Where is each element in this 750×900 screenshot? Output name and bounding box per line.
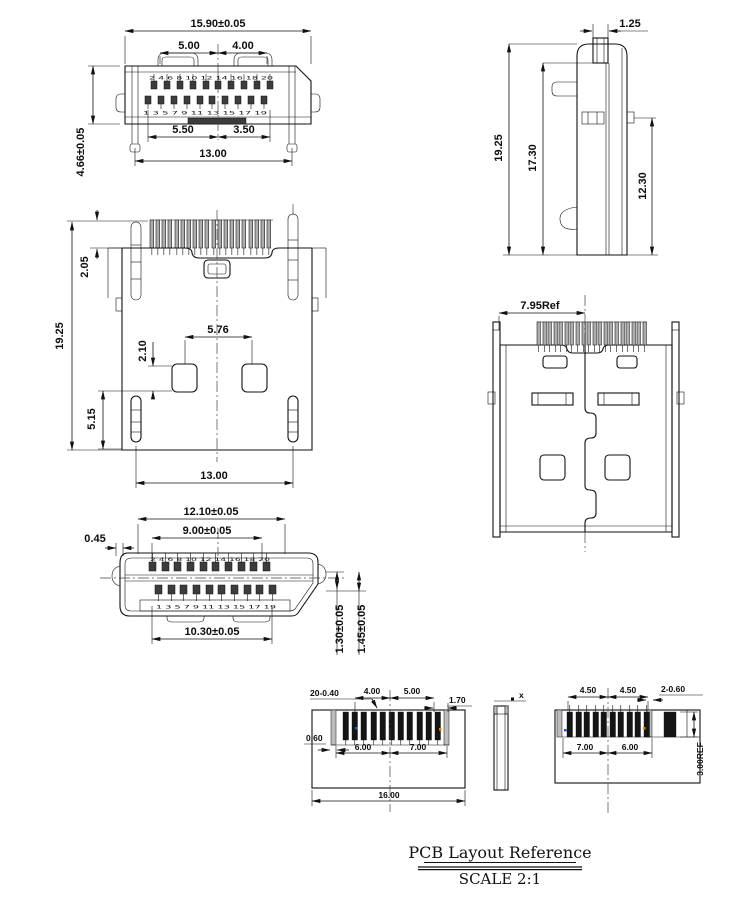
- bottom-view-dimensions: [67, 210, 293, 488]
- right-pad: [242, 364, 267, 392]
- right-bump: [627, 112, 634, 123]
- dim-c: 1.70: [449, 695, 466, 705]
- left-side-tab: [116, 298, 122, 311]
- drawing-title: PCB Layout Reference: [408, 843, 591, 862]
- view-top: 2 4 6 8 10 12 14 16 18 20 1 3 5 7 9 11 1…: [75, 18, 320, 176]
- pcb-layout-left: 20-0.40 4.00 5.00 1.70 0.60 6.00 7.00 16…: [304, 686, 472, 812]
- rear-view-body: [488, 322, 684, 537]
- dim-b: 5.00: [404, 686, 421, 696]
- dim-height: 4.66±0.05: [75, 128, 87, 177]
- left-flange: [493, 322, 500, 537]
- dim-d: 6.00: [355, 742, 372, 752]
- dim-contact-span: 9.00±0.05: [183, 525, 232, 537]
- top-tab: [593, 38, 608, 63]
- dim-slot: 0.60: [306, 733, 323, 743]
- split-line: [585, 345, 596, 532]
- left-post: [131, 222, 141, 300]
- front-view-pins-bottom: [155, 585, 276, 601]
- right-slot-pad: [444, 710, 449, 745]
- right-leg: [288, 396, 298, 442]
- left-ear: [112, 566, 120, 586]
- pcb-left-pads: [343, 712, 441, 745]
- dim-e: 7.00: [410, 742, 427, 752]
- dim-a: 4.50: [580, 685, 597, 695]
- board-lock: [582, 112, 604, 124]
- view-front: 2 4 6 8 10 12 14 16 18 20 1 3 5 7 9 11 1…: [84, 506, 368, 655]
- left-tab: [488, 392, 495, 404]
- pin-numbers-even: 2 4 6 8 10 12 14 16 18 20: [149, 76, 273, 82]
- right-post: [288, 214, 298, 300]
- dim-b: 4.50: [620, 685, 637, 695]
- dim-d: 6.00: [622, 742, 639, 752]
- dim-leg-span: 13.00: [199, 148, 227, 160]
- dim-pitch-right: 4.00: [232, 40, 253, 52]
- right-boss: [233, 616, 270, 622]
- right-ear: [318, 564, 326, 584]
- right-ear: [311, 94, 320, 112]
- right-flange: [672, 322, 679, 537]
- dim-a: 4.00: [364, 686, 381, 696]
- mark-orange: [439, 728, 442, 731]
- dim-pad-size: 2.10: [137, 340, 149, 361]
- left-slot-pad: [557, 710, 562, 737]
- left-slot: [543, 356, 567, 368]
- left-square: [540, 455, 565, 480]
- pcb-layout-right: 4.50 4.50 2-0.60 7.00 6.00 3.00REF: [555, 684, 705, 815]
- dim-leg-span2: 13.00: [200, 470, 228, 482]
- dim-body-height: 17.30: [527, 144, 539, 172]
- dim-overall-height: 19.25: [493, 134, 505, 162]
- right-side-tab: [312, 298, 318, 311]
- dim-width: 16.00: [378, 790, 400, 800]
- front-pin-numbers-top: 2 4 6 8 10 12 14 16 18 20: [150, 557, 270, 563]
- right-slot: [617, 356, 637, 368]
- bottom-view-comb: [150, 220, 273, 255]
- left-slot-pad: [331, 710, 336, 745]
- connector-drawing: 2 4 6 8 10 12 14 16 18 20 1 3 5 7 9 11 1…: [0, 0, 750, 900]
- dim-pin-tip: 2.05: [79, 256, 91, 277]
- dim-holes-count: 2-0.60: [661, 684, 685, 694]
- mark-blue: [355, 727, 358, 730]
- dim-step2: 1.45±0.05: [356, 605, 368, 654]
- side-view-dimensions: [503, 24, 658, 255]
- mark-blue: [564, 729, 567, 732]
- drawing-sheet: 2 4 6 8 10 12 14 16 18 20 1 3 5 7 9 11 1…: [0, 0, 750, 900]
- dim-thickness: x: [519, 690, 524, 700]
- side-view-body: [552, 38, 634, 255]
- dim-pad-pitch: 5.76: [207, 324, 228, 336]
- pcb-edge-view: x: [494, 690, 526, 790]
- front-pin-numbers-bottom: 1 3 5 7 9 11 13 15 17 19: [156, 605, 276, 611]
- right-square: [605, 455, 630, 480]
- dim-overall-width: 15.90±0.05: [191, 18, 246, 30]
- left-leg: [131, 396, 141, 442]
- view-rear: 7.95Ref: [488, 295, 684, 552]
- dim-step1: 1.30±0.05: [334, 605, 346, 654]
- mark-orange: [643, 727, 646, 730]
- view-bottom: 2.05 19.25 5.76 2.10 5.15 13.00: [54, 204, 326, 488]
- dim-tab-width: 1.25: [619, 18, 640, 30]
- dim-leg-height: 5.15: [86, 408, 98, 429]
- dim-overall-height2: 19.25: [54, 322, 66, 350]
- dim-row-left: 5.50: [172, 124, 193, 136]
- dim-lock-height: 12.30: [637, 172, 649, 200]
- dim-row-right: 3.50: [233, 124, 254, 136]
- dim-holes-count: 20-0.40: [310, 688, 339, 698]
- drawing-scale: SCALE 2:1: [459, 870, 541, 888]
- left-ear: [116, 94, 125, 112]
- rear-view-comb: [537, 322, 647, 352]
- dim-shell-width: 12.10±0.05: [184, 506, 239, 518]
- dim-shell-offset: 0.45: [84, 533, 105, 545]
- dim-pitch-left: 5.00: [178, 40, 199, 52]
- dim-c: 7.00: [577, 742, 594, 752]
- shield-pad: [664, 712, 676, 737]
- view-side: 1.25 19.25 17.30 12.30: [493, 18, 658, 255]
- side-tab: [552, 82, 577, 96]
- bottom-hook: [560, 207, 577, 229]
- top-view-pin-row-odd: [145, 96, 267, 109]
- pin-numbers-odd: 1 3 5 7 9 11 13 15 17 19: [143, 111, 267, 117]
- dim-ref: 3.00REF: [695, 742, 705, 776]
- dim-tick: [511, 698, 514, 701]
- title-block: PCB Layout Reference SCALE 2:1: [408, 843, 591, 888]
- right-tab: [677, 392, 684, 404]
- board-edge: [494, 706, 508, 790]
- dim-lower-span: 10.30±0.05: [185, 626, 240, 638]
- left-pad: [172, 364, 197, 392]
- left-boss: [167, 616, 204, 622]
- dim-ref-width: 7.95Ref: [520, 300, 559, 312]
